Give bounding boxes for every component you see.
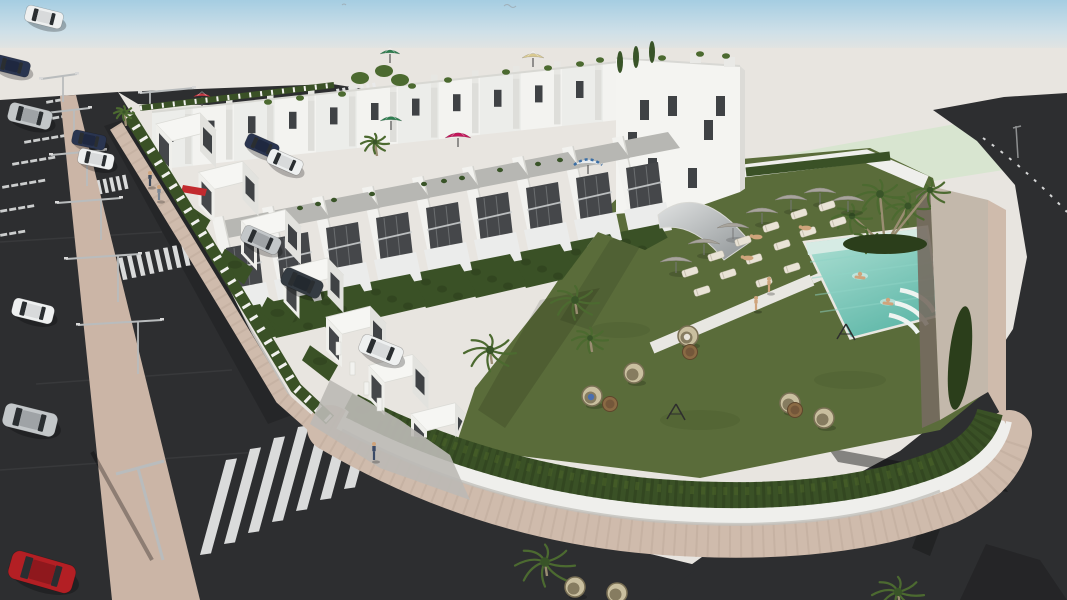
rendering-canvas: [0, 0, 1067, 600]
seated-person: [684, 334, 690, 340]
window: [371, 103, 379, 120]
rooftop-plant: [264, 99, 272, 105]
window: [412, 99, 420, 116]
terrace-plant: [557, 158, 563, 162]
cypress-plant: [633, 46, 639, 68]
terrace-plant: [331, 198, 337, 202]
terrace-plant: [421, 182, 427, 186]
window: [535, 85, 543, 102]
palm-bed-hedge: [843, 234, 927, 254]
rooftop-plant: [696, 51, 704, 57]
terrace-plant: [497, 168, 503, 172]
wicker-table: [788, 403, 803, 418]
rooftop-plant: [296, 95, 304, 101]
terrace-plant: [441, 179, 447, 183]
terrace-plant: [315, 202, 321, 206]
window: [494, 90, 502, 107]
rooftop-plant: [596, 57, 604, 63]
fence-pillar: [336, 342, 341, 355]
fence-pillar: [364, 382, 369, 395]
cypress-plant: [649, 41, 655, 63]
window: [453, 94, 461, 111]
sky: [0, 0, 1067, 54]
window: [716, 96, 725, 116]
window: [704, 120, 713, 140]
rooftop-plant: [722, 53, 730, 59]
fence-pillar: [377, 398, 382, 411]
rooftop-plant: [444, 77, 452, 83]
rooftop-plant: [408, 83, 416, 89]
terrace-plant: [459, 176, 465, 180]
window: [248, 116, 256, 133]
window: [289, 112, 297, 129]
east-boundary: [916, 186, 1006, 428]
rooftop-plant: [502, 69, 510, 75]
window: [576, 81, 584, 98]
fence-pillar: [350, 362, 355, 375]
wicker-table: [603, 397, 618, 412]
rooftop-plant: [658, 55, 666, 61]
seated-person: [588, 394, 594, 400]
architectural-rendering: [0, 0, 1067, 600]
rooftop-plant: [338, 91, 346, 97]
rooftop-plant: [544, 65, 552, 71]
bush: [351, 72, 369, 84]
wicker-table: [683, 345, 698, 360]
cypress-plant: [617, 51, 623, 73]
terrace-plant: [297, 206, 303, 210]
terrace-plant: [535, 162, 541, 166]
window: [330, 107, 338, 124]
window: [688, 168, 697, 188]
rooftop-plant: [576, 61, 584, 67]
bush: [375, 65, 393, 77]
terrace-plant: [369, 192, 375, 196]
window: [640, 100, 649, 120]
window: [668, 96, 677, 116]
bush: [391, 74, 409, 86]
